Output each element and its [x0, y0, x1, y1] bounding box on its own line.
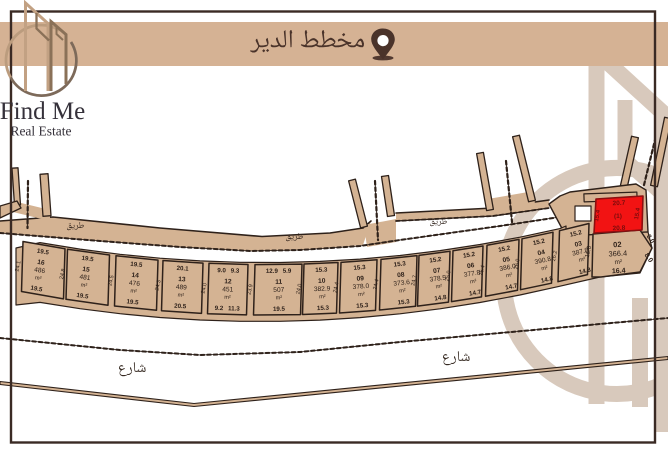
svg-text:12: 12	[224, 278, 232, 285]
svg-text:19.5: 19.5	[126, 298, 139, 306]
svg-text:15.3: 15.3	[315, 267, 328, 275]
svg-text:378.0: 378.0	[352, 283, 369, 291]
svg-text:507: 507	[273, 287, 284, 294]
svg-text:m²: m²	[177, 293, 184, 299]
svg-text:m²: m²	[399, 288, 406, 295]
svg-text:489: 489	[176, 284, 188, 292]
svg-text:15.3: 15.3	[393, 260, 406, 268]
svg-text:m²: m²	[470, 278, 478, 285]
svg-text:15.3: 15.3	[356, 302, 369, 310]
svg-text:366.4: 366.4	[608, 248, 627, 258]
svg-text:9.0 9.3: 9.0 9.3	[217, 267, 240, 275]
svg-text:06: 06	[467, 262, 476, 270]
svg-text:m²: m²	[34, 275, 42, 282]
svg-text:9.2 11.3: 9.2 11.3	[215, 305, 241, 313]
svg-text:12.9 5.9: 12.9 5.9	[266, 268, 292, 275]
svg-text:15.3: 15.3	[317, 305, 330, 313]
svg-text:20.7: 20.7	[613, 200, 626, 207]
svg-text:14: 14	[131, 272, 139, 280]
svg-text:15.3: 15.3	[397, 298, 410, 306]
svg-text:20.1: 20.1	[176, 265, 189, 273]
svg-text:m²: m²	[276, 295, 283, 301]
svg-text:m²: m²	[130, 288, 137, 295]
svg-text:m²: m²	[358, 292, 365, 298]
svg-text:16: 16	[37, 259, 46, 267]
svg-text:15: 15	[82, 266, 91, 274]
svg-text:m²: m²	[80, 282, 87, 289]
svg-text:382.9: 382.9	[314, 285, 331, 293]
svg-text:15.3: 15.3	[353, 264, 366, 272]
svg-text:451: 451	[222, 286, 234, 293]
svg-text:20.5: 20.5	[174, 303, 187, 311]
svg-text:16.4: 16.4	[612, 268, 626, 276]
svg-text:19.5: 19.5	[273, 306, 286, 313]
svg-text:(1): (1)	[614, 213, 622, 220]
svg-text:m²: m²	[614, 259, 623, 266]
svg-text:m²: m²	[505, 272, 513, 279]
svg-text:Find Me: Find Me	[0, 98, 85, 125]
svg-text:11: 11	[275, 279, 282, 286]
svg-text:07: 07	[433, 267, 442, 275]
svg-text:09: 09	[356, 275, 364, 283]
svg-text:02: 02	[613, 240, 622, 249]
svg-text:m²: m²	[435, 284, 442, 291]
svg-text:13: 13	[178, 276, 186, 283]
svg-text:m²: m²	[224, 295, 231, 301]
svg-text:476: 476	[129, 280, 141, 288]
svg-text:20.8: 20.8	[613, 225, 626, 232]
svg-text:10: 10	[318, 278, 326, 285]
svg-text:m²: m²	[319, 294, 326, 300]
svg-text:19.5: 19.5	[130, 261, 143, 269]
svg-text:Real Estate: Real Estate	[10, 124, 71, 139]
svg-text:08: 08	[397, 272, 405, 280]
